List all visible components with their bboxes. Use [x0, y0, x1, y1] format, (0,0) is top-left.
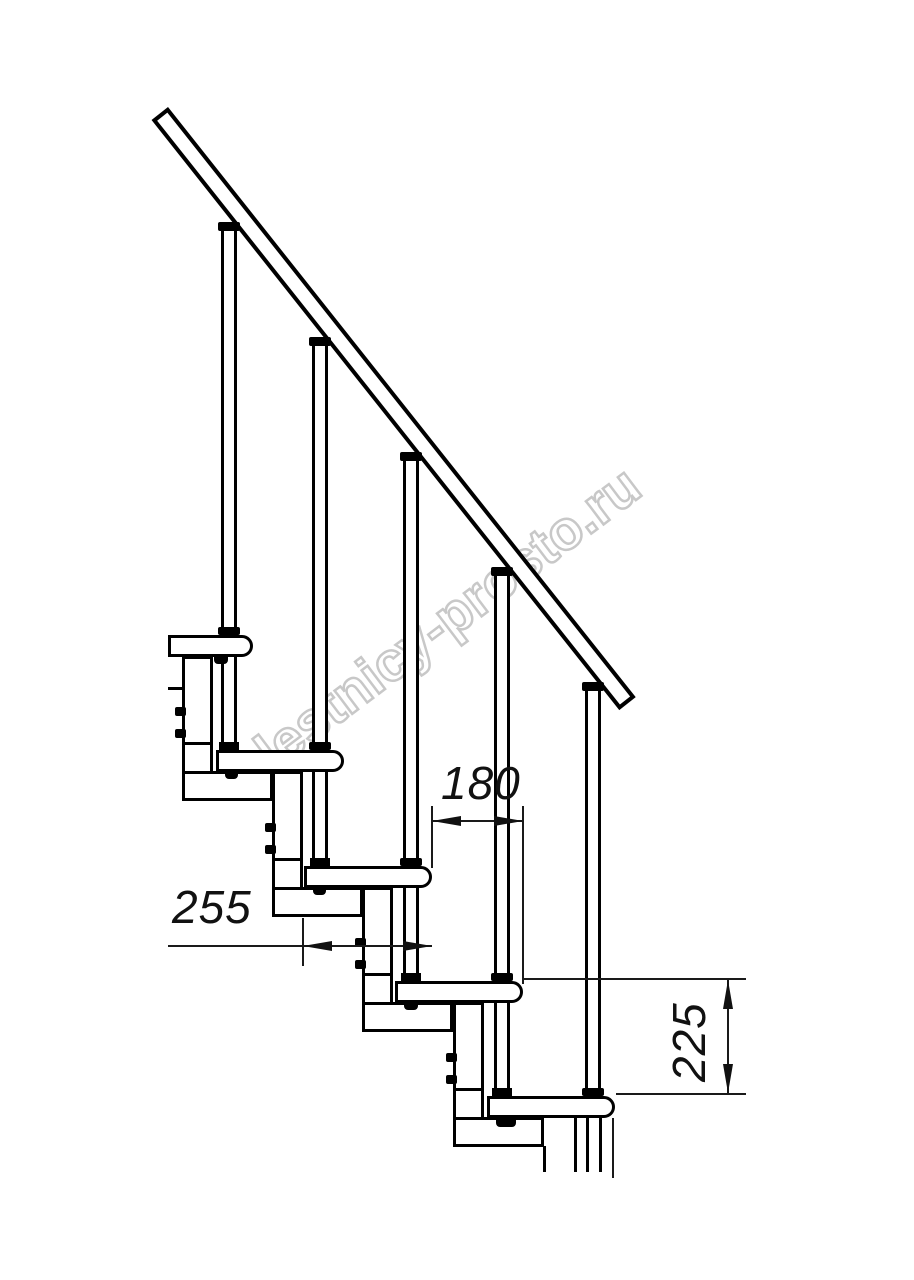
stringer-divider — [272, 858, 303, 861]
stringer-bolt — [265, 823, 276, 832]
baluster-top-collar — [218, 222, 240, 231]
dim-180-extension-line — [522, 806, 524, 984]
tread-nut — [496, 1117, 516, 1127]
baluster-tube — [403, 460, 419, 859]
cut-edge-tab — [168, 687, 182, 690]
baluster-bottom-collar — [491, 973, 513, 981]
baluster-rod — [494, 1002, 510, 1096]
stringer-bolt — [265, 845, 276, 854]
tread — [487, 1096, 615, 1118]
baluster-bottom-collar — [400, 858, 422, 866]
tread — [395, 981, 523, 1003]
lower-column-line — [574, 1118, 577, 1172]
baluster-rod-nut — [310, 858, 330, 866]
tread — [168, 635, 253, 657]
baluster-tube — [312, 345, 328, 743]
dim-225-label: 225 — [662, 1002, 716, 1082]
baluster-bottom-collar — [309, 742, 331, 750]
dim-255-line — [168, 945, 432, 947]
baluster-bottom-collar — [582, 1088, 604, 1096]
tread-nut — [404, 1002, 418, 1010]
dim-255-arrow-right — [403, 941, 432, 951]
stringer-bolt — [446, 1053, 457, 1062]
tread — [216, 750, 344, 772]
baluster-rod — [403, 887, 419, 981]
tread-nut — [313, 887, 326, 895]
stringer-divider — [453, 1088, 484, 1091]
baluster-top-collar — [582, 682, 604, 691]
lower-column-line — [586, 1118, 589, 1172]
baluster-rod-nut — [492, 1088, 512, 1096]
dim-225-arrow-down — [723, 1064, 733, 1093]
stringer-bolt — [355, 960, 366, 969]
dim-225-extension-line — [523, 978, 746, 980]
lower-column-line — [599, 1118, 602, 1172]
tread-nut — [225, 771, 238, 779]
dim-225-arrow-up — [723, 980, 733, 1009]
stringer-bolt — [446, 1075, 457, 1084]
dim-180-label: 180 — [441, 756, 521, 810]
dim-180-arrow-left — [432, 816, 461, 826]
dim-255-label: 255 — [172, 880, 252, 934]
dim-180-arrow-right — [494, 816, 523, 826]
baluster-bottom-collar — [218, 627, 240, 635]
dim-255-arrow-left — [303, 941, 332, 951]
baluster-rod — [312, 771, 328, 866]
baluster-top-collar — [400, 452, 422, 461]
baluster-rod-nut — [219, 742, 239, 750]
baluster-top-collar — [309, 337, 331, 346]
baluster-rod-nut — [401, 973, 421, 981]
stringer-bolt — [175, 707, 186, 716]
staircase-drawing: lestnicy-prosto.ru — [0, 0, 914, 1280]
baluster-rod — [221, 656, 237, 750]
lower-edge-line — [612, 1118, 614, 1178]
baluster-tube — [221, 230, 237, 628]
tread — [304, 866, 432, 888]
lower-column-line — [543, 1146, 546, 1172]
baluster-top-collar — [491, 567, 513, 576]
stringer-divider — [362, 973, 393, 976]
stringer-divider — [182, 742, 213, 745]
stringer-bolt — [175, 729, 186, 738]
baluster-tube — [585, 690, 601, 1089]
tread-nut — [214, 656, 228, 664]
